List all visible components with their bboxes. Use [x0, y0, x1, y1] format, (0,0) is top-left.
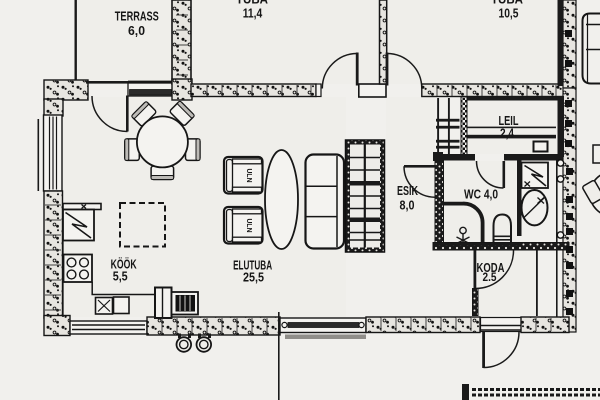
- svg-text:8,0: 8,0: [400, 198, 415, 213]
- svg-text:ESIK: ESIK: [397, 184, 418, 198]
- svg-text:6,0: 6,0: [128, 23, 145, 38]
- svg-text:2.5: 2.5: [483, 270, 497, 284]
- svg-text:5,5: 5,5: [113, 269, 128, 284]
- svg-text:11,4: 11,4: [243, 6, 263, 21]
- svg-text:TERRASS: TERRASS: [115, 9, 159, 23]
- svg-text:ULN: ULN: [245, 219, 254, 233]
- svg-text:10,5: 10,5: [499, 6, 519, 21]
- svg-text:WC 4,0: WC 4,0: [464, 188, 498, 202]
- svg-text:2,4: 2,4: [500, 126, 515, 141]
- svg-text:ULN: ULN: [245, 169, 254, 183]
- svg-text:25,5: 25,5: [243, 270, 264, 285]
